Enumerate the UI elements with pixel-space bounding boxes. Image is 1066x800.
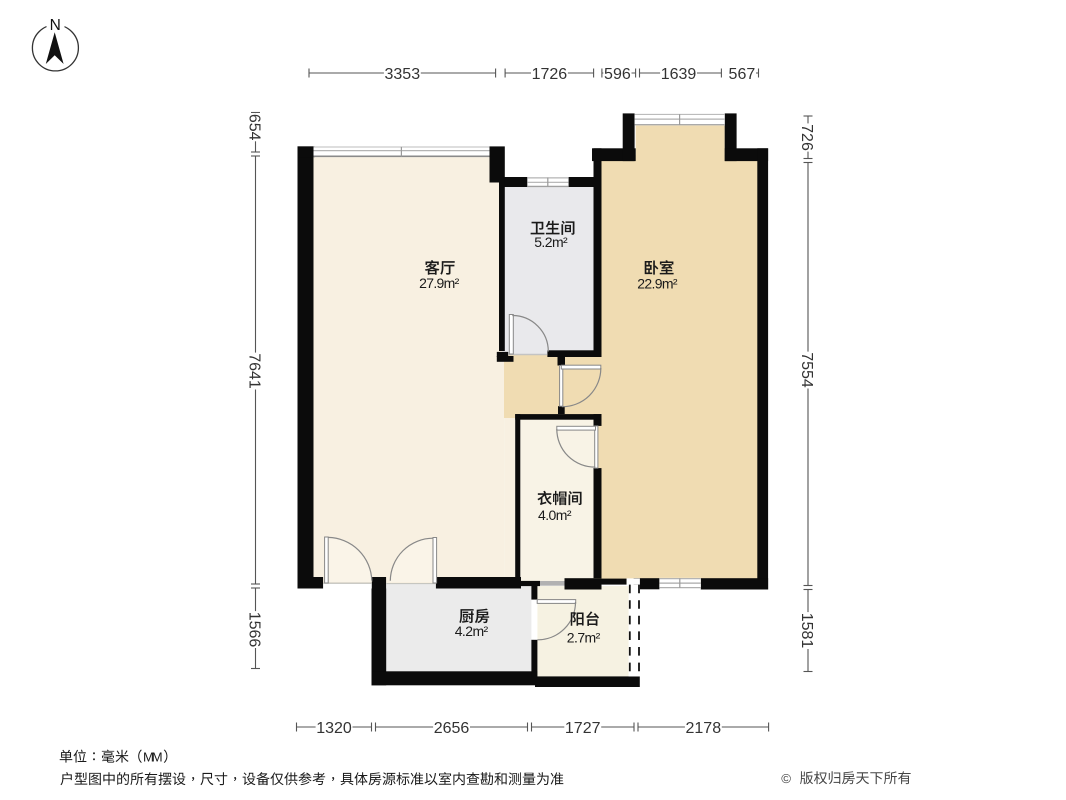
- svg-text:1727: 1727: [565, 720, 601, 737]
- svg-text:1639: 1639: [661, 66, 697, 83]
- svg-text:654: 654: [246, 114, 263, 141]
- svg-text:MM: MM: [143, 750, 163, 765]
- svg-text:567: 567: [729, 66, 756, 83]
- svg-text:7554: 7554: [798, 352, 815, 388]
- svg-text:1581: 1581: [798, 613, 815, 649]
- svg-text:2.7m²: 2.7m²: [567, 630, 601, 646]
- svg-text:7641: 7641: [246, 353, 263, 389]
- svg-text:4.0m²: 4.0m²: [538, 507, 572, 523]
- svg-text:©: ©: [781, 771, 791, 786]
- svg-text:27.9m²: 27.9m²: [419, 275, 460, 291]
- svg-text:1726: 1726: [532, 66, 568, 83]
- svg-text:2178: 2178: [686, 720, 722, 737]
- svg-text:596: 596: [604, 66, 631, 83]
- svg-text:1566: 1566: [246, 612, 263, 648]
- svg-text:2656: 2656: [434, 720, 470, 737]
- svg-text:N: N: [50, 17, 61, 34]
- svg-text:3353: 3353: [385, 66, 421, 83]
- svg-text:5.2m²: 5.2m²: [534, 234, 568, 250]
- svg-text:1320: 1320: [316, 720, 352, 737]
- svg-text:22.9m²: 22.9m²: [637, 276, 678, 292]
- svg-text:726: 726: [798, 124, 815, 151]
- svg-text:4.2m²: 4.2m²: [455, 623, 489, 639]
